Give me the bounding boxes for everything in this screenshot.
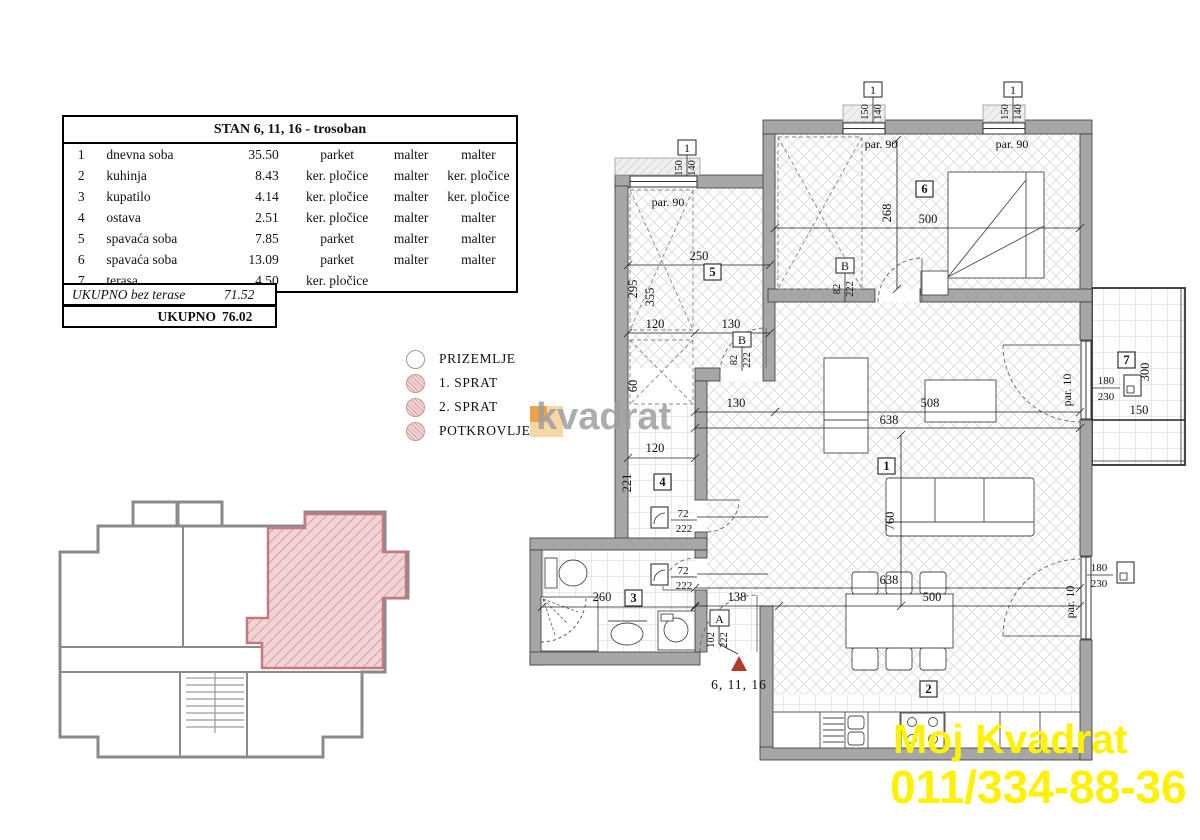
cell-room-name: dnevna soba [98, 143, 215, 165]
legend-item-potkrovlje: POTKROVLJE [406, 419, 531, 443]
door-width: 72 [678, 565, 689, 577]
parapet-label: par. 10 [1063, 586, 1077, 619]
door-width: 82 [729, 355, 740, 366]
door-width: 72 [678, 508, 689, 520]
dim-label: 150 [1130, 403, 1149, 417]
dim-label: 260 [593, 590, 612, 604]
dim-label: 120 [646, 317, 665, 331]
cell-room-name: spavaća soba [98, 228, 215, 249]
door-height: 230 [1098, 391, 1115, 403]
door-tag-balcony-lower: 180 230 [1087, 562, 1134, 590]
dim-label: 295 [626, 280, 640, 299]
cell-num: 2 [63, 165, 98, 186]
total-label: UKUPNO [64, 309, 222, 325]
door-letter: B [738, 333, 746, 347]
highlighted-apartment [247, 514, 406, 668]
room-number: 7 [1123, 353, 1129, 367]
kvadrat-watermark: kvadrat [536, 396, 671, 439]
cell-area: 7.85 [215, 228, 293, 249]
door-letter: B [841, 259, 849, 273]
legend-item-sprat1: 1. SPRAT [406, 371, 531, 395]
cell-num: 1 [63, 143, 98, 165]
legend-item-sprat2: 2. SPRAT [406, 395, 531, 419]
door-height: 222 [742, 352, 753, 368]
spec-title-row: STAN 6, 11, 16 - trosoban [63, 116, 517, 143]
legend-item-prizemlje: PRIZEMLJE [406, 347, 531, 371]
dim-label: 508 [921, 396, 940, 410]
cell-ceiling [441, 270, 517, 292]
dim-label: 130 [727, 396, 746, 410]
cell-num: 6 [63, 249, 98, 270]
parapet-label: par. 90 [996, 137, 1029, 151]
cell-room-name: kuhinja [98, 165, 215, 186]
cell-room-name: ostava [98, 207, 215, 228]
cell-ceiling: ker. pločice [441, 186, 517, 207]
window-width: 150 [860, 104, 871, 120]
door-width: 102 [706, 632, 717, 648]
cell-floor: parket [293, 249, 382, 270]
subtotal-row: UKUPNO bez terase 71.52 [62, 283, 277, 306]
cell-ceiling: malter [441, 143, 517, 165]
floor-legend: PRIZEMLJE 1. SPRAT 2. SPRAT POTKROVLJE [406, 347, 531, 443]
dim-label: 760 [883, 512, 897, 531]
legend-label: 2. SPRAT [439, 399, 498, 415]
agency-watermark-name: Moj Kvadrat [893, 716, 1128, 763]
key-plan-building [40, 490, 430, 790]
dim-label: 138 [728, 590, 747, 604]
apartment-spec-table: STAN 6, 11, 16 - trosoban 1 dnevna soba … [62, 115, 518, 293]
legend-swatch-empty [406, 350, 425, 369]
window-width: 150 [1000, 104, 1011, 120]
cell-floor: parket [293, 143, 382, 165]
door-height: 222 [676, 523, 693, 535]
cell-floor: ker. pločice [293, 186, 382, 207]
door-height: 222 [676, 580, 693, 592]
door-height: 230 [1091, 578, 1108, 590]
legend-label: 1. SPRAT [439, 375, 498, 391]
cell-walls: malter [382, 186, 441, 207]
total-value: 76.02 [222, 309, 275, 325]
dim-label: 130 [722, 317, 741, 331]
legend-swatch-hatched [406, 422, 425, 441]
cell-area: 13.09 [215, 249, 293, 270]
parapet-label: par. 90 [652, 195, 685, 209]
legend-swatch-hatched [406, 374, 425, 393]
dim-label: 120 [646, 441, 665, 455]
window-height: 140 [687, 160, 698, 176]
cell-ceiling: malter [441, 228, 517, 249]
cell-area: 4.14 [215, 186, 293, 207]
window-height: 140 [1013, 104, 1024, 120]
window-num: 1 [684, 141, 690, 155]
cell-walls: malter [382, 249, 441, 270]
spec-table-title: STAN 6, 11, 16 - trosoban [63, 116, 517, 143]
legend-label: POTKROVLJE [439, 423, 531, 439]
door-letter: A [715, 612, 724, 626]
cell-floor: parket [293, 228, 382, 249]
dim-label: 355 [643, 288, 657, 307]
dim-label: 638 [880, 413, 899, 427]
spec-row: 5 spavaća soba 7.85 parket malter malter [63, 228, 517, 249]
cell-num: 5 [63, 228, 98, 249]
dim-label: 500 [923, 590, 942, 604]
dim-label: 60 [626, 380, 640, 393]
cell-area: 35.50 [215, 143, 293, 165]
spec-row: 2 kuhinja 8.43 ker. pločice malter ker. … [63, 165, 517, 186]
cell-num: 4 [63, 207, 98, 228]
cell-area: 2.51 [215, 207, 293, 228]
cell-num: 3 [63, 186, 98, 207]
subtotal-label: UKUPNO bez terase [64, 287, 224, 303]
cell-walls [382, 270, 441, 292]
dim-label: 221 [620, 474, 634, 493]
cell-walls: malter [382, 143, 441, 165]
door-width: 82 [832, 284, 843, 295]
dim-label: 638 [880, 573, 899, 587]
room-number: 5 [709, 265, 715, 279]
door-width: 180 [1091, 562, 1108, 574]
unit-marker: 6, 11, 16 [711, 656, 767, 692]
dim-label: 268 [880, 204, 894, 223]
agency-watermark-phone: 011/334-88-36 [890, 760, 1187, 814]
room-number: 1 [883, 459, 889, 473]
legend-label: PRIZEMLJE [439, 351, 516, 367]
cell-floor: ker. pločice [293, 207, 382, 228]
window-width: 150 [674, 160, 685, 176]
room-number: 6 [921, 182, 927, 196]
dim-label: 500 [919, 212, 938, 226]
cell-walls: malter [382, 207, 441, 228]
spec-row: 4 ostava 2.51 ker. pločice malter malter [63, 207, 517, 228]
marker-triangle-icon [731, 656, 747, 671]
parapet-label: par. 90 [865, 137, 898, 151]
cell-walls: malter [382, 228, 441, 249]
subtotal-value: 71.52 [224, 287, 275, 303]
window-num: 1 [1010, 83, 1016, 97]
parapet-label: par. 10 [1060, 374, 1074, 407]
spec-row: 3 kupatilo 4.14 ker. pločice malter ker.… [63, 186, 517, 207]
cell-area: 8.43 [215, 165, 293, 186]
spec-row: 1 dnevna soba 35.50 parket malter malter [63, 143, 517, 165]
cell-ceiling: ker. pločice [441, 165, 517, 186]
room-number: 3 [630, 591, 636, 605]
cell-room-name: kupatilo [98, 186, 215, 207]
door-height: 222 [719, 632, 730, 648]
cell-floor: ker. pločice [293, 270, 382, 292]
dim-label: 250 [690, 249, 709, 263]
window-height: 140 [873, 104, 884, 120]
cell-room-name: spavaća soba [98, 249, 215, 270]
door-height: 222 [845, 281, 856, 297]
total-row: UKUPNO 76.02 [62, 305, 277, 328]
cell-ceiling: malter [441, 249, 517, 270]
floor-plan-sheet: STAN 6, 11, 16 - trosoban 1 dnevna soba … [0, 0, 1200, 840]
cell-ceiling: malter [441, 207, 517, 228]
spec-row: 6 spavaća soba 13.09 parket malter malte… [63, 249, 517, 270]
room-number: 2 [925, 682, 931, 696]
cell-walls: malter [382, 165, 441, 186]
dining-set [846, 572, 953, 670]
room-number: 4 [659, 475, 666, 489]
window-num: 1 [870, 83, 876, 97]
legend-swatch-hatched [406, 398, 425, 417]
door-width: 180 [1098, 375, 1115, 387]
marker-units: 6, 11, 16 [711, 677, 767, 692]
apartment-floor-plan: 268 500 250 295 355 120 130 60 130 508 6… [520, 70, 1200, 815]
cell-floor: ker. pločice [293, 165, 382, 186]
